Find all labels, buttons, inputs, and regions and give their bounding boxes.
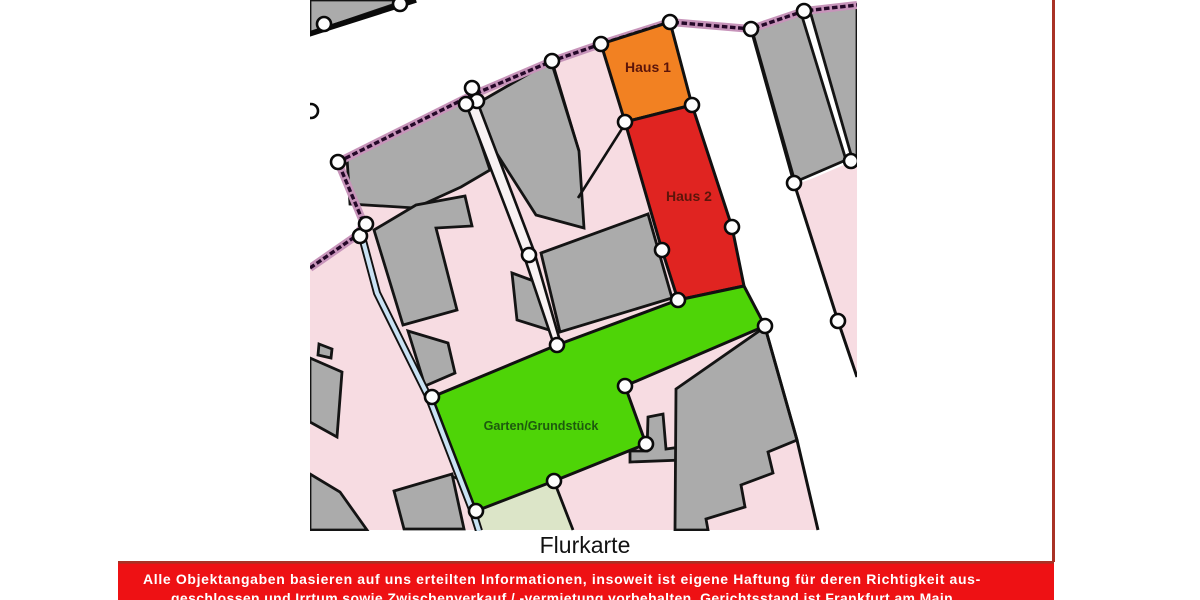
svg-text:Haus 1: Haus 1 — [625, 59, 671, 75]
svg-text:Haus 2: Haus 2 — [666, 188, 712, 204]
svg-text:geschlossen und Irrtum sowie Z: geschlossen und Irrtum sowie Zwischenver… — [171, 590, 953, 600]
svg-text:Alle Objektangaben basieren au: Alle Objektangaben basieren auf uns erte… — [143, 571, 981, 587]
svg-text:Garten/Grundstück: Garten/Grundstück — [484, 419, 600, 433]
svg-text:Flurkarte: Flurkarte — [540, 532, 631, 558]
